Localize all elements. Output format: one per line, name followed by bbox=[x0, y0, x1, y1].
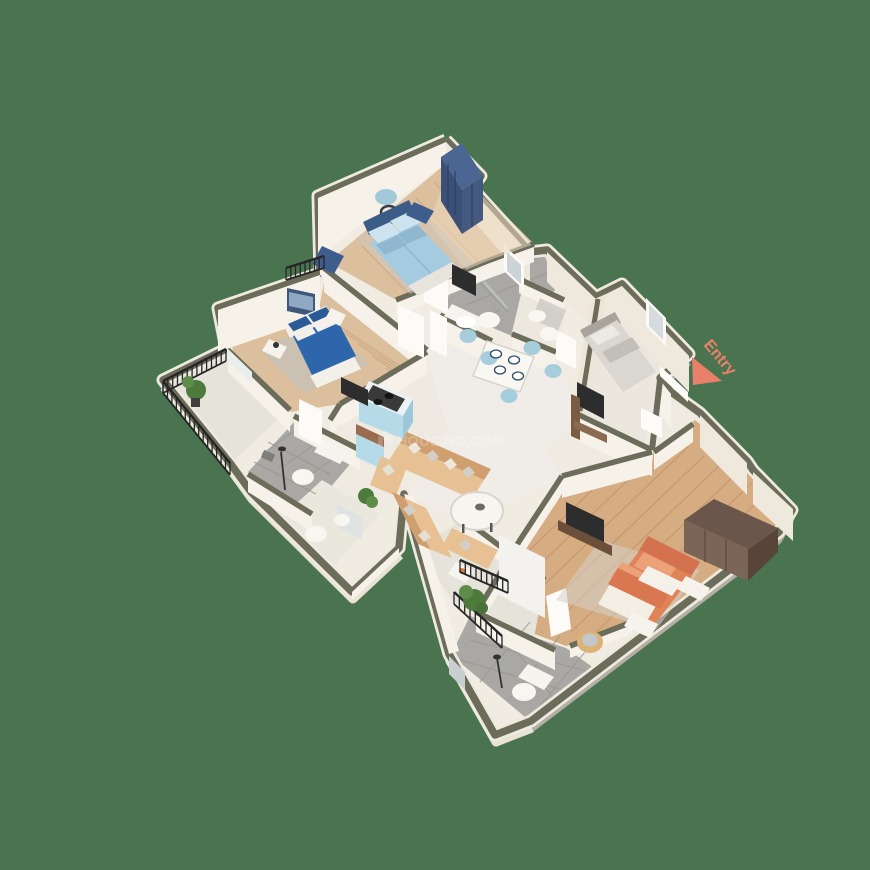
svg-text:HOUSING.COM: HOUSING.COM bbox=[397, 434, 505, 450]
